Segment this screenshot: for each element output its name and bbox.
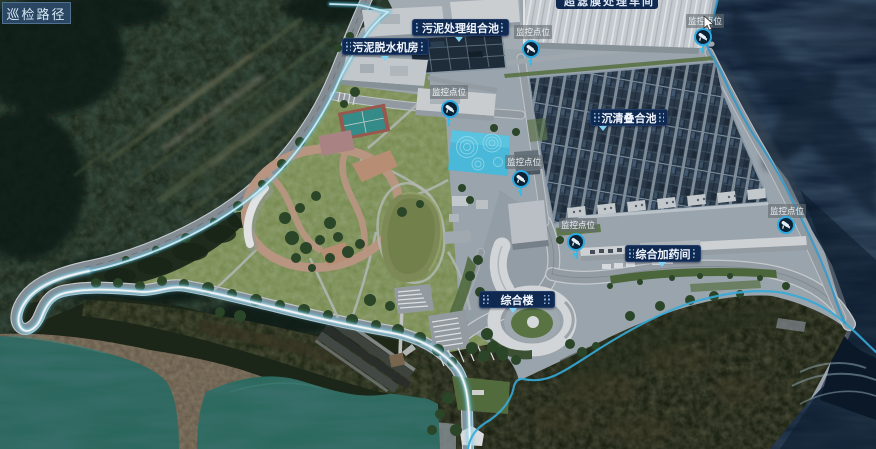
svg-text:超滤膜处理车间: 超滤膜处理车间	[563, 0, 655, 8]
